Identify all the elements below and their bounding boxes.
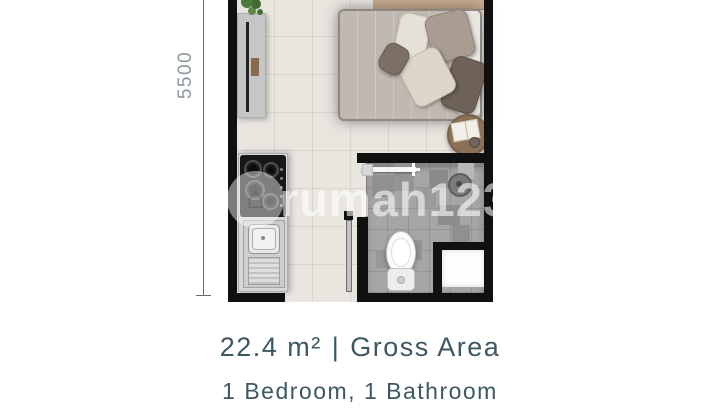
- wall-bathroom-left: [357, 217, 368, 302]
- stove-knob: [280, 168, 283, 171]
- bathroom-tile: [416, 188, 436, 208]
- burner: [262, 193, 279, 210]
- tv-console-rail: [246, 22, 249, 112]
- bathroom-door: [346, 220, 352, 292]
- bathroom-door-jamb: [344, 211, 353, 220]
- dimension-tick: [196, 295, 211, 296]
- stove-knob: [280, 195, 283, 198]
- shower-niche: [442, 250, 484, 287]
- wall-bottom-left: [228, 293, 285, 302]
- rooms-line: 1 Bedroom, 1 Bathroom: [0, 378, 720, 405]
- toilet-seat: [391, 238, 411, 267]
- sink-drain: [261, 236, 265, 240]
- wall-shower-niche-left: [433, 242, 442, 302]
- toilet-flush-button: [397, 276, 405, 284]
- floor-drain-center: [456, 181, 462, 187]
- wall-right: [484, 0, 493, 302]
- stove-knob: [280, 186, 283, 189]
- area-label: Gross Area: [350, 332, 500, 362]
- wall-bathroom-top: [357, 153, 493, 163]
- dimension-label: 5500: [169, 45, 203, 105]
- wall-bottom-right: [357, 293, 493, 302]
- separator: |: [322, 332, 351, 362]
- cup: [469, 137, 480, 148]
- tv: [251, 58, 259, 76]
- shower-control: [362, 164, 373, 176]
- floor-plan-page: 5500: [0, 0, 720, 420]
- wall-left: [228, 0, 237, 302]
- stove-knob: [280, 204, 283, 207]
- stove-knob: [280, 177, 283, 180]
- wall-shower-niche-top: [433, 242, 493, 250]
- bathroom-tile: [452, 225, 470, 243]
- gross-area-line: 22.4 m²|Gross Area: [0, 332, 720, 363]
- burner: [263, 162, 279, 178]
- shower-head: [412, 163, 415, 176]
- sink-drainer: [248, 257, 280, 285]
- burner: [244, 160, 262, 178]
- dimension-line: [203, 0, 204, 296]
- bathroom-tile: [438, 205, 460, 225]
- bathroom-tile: [430, 170, 448, 188]
- area-value: 22.4 m²: [220, 332, 322, 362]
- bathroom-tile: [372, 175, 394, 197]
